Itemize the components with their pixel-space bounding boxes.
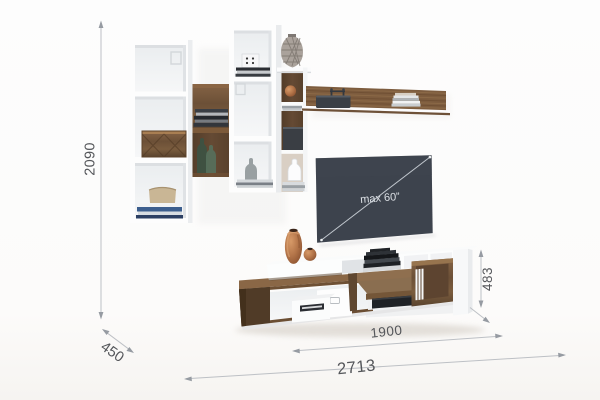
svg-text:483: 483 [480,267,495,291]
svg-text:2090: 2090 [82,142,98,175]
